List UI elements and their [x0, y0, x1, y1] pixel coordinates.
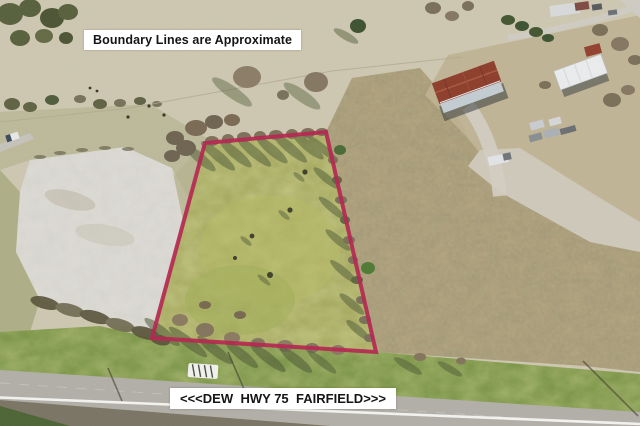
- highway-direction-label: <<<DEW HWY 75 FAIRFIELD>>>: [170, 388, 396, 409]
- direction-west-dew: <<<DEW: [180, 388, 233, 409]
- aerial-photo: Boundary Lines are Approximate <<<DEW HW…: [0, 0, 640, 426]
- aerial-scene: [0, 0, 640, 426]
- photo-grain: [0, 0, 640, 426]
- boundary-disclaimer-label: Boundary Lines are Approximate: [84, 30, 301, 50]
- highway-name: HWY 75: [240, 388, 288, 409]
- direction-east-fairfield: FAIRFIELD>>>: [296, 388, 386, 409]
